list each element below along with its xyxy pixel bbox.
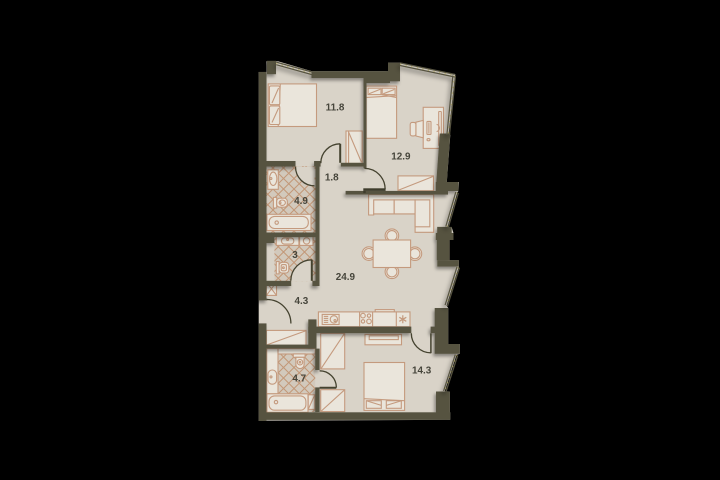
svg-text:12.9: 12.9 xyxy=(391,151,411,162)
svg-text:1.8: 1.8 xyxy=(325,172,339,183)
svg-text:4.9: 4.9 xyxy=(294,196,308,207)
svg-text:14.3: 14.3 xyxy=(412,365,432,376)
svg-text:3: 3 xyxy=(292,250,298,261)
svg-text:11.8: 11.8 xyxy=(326,102,345,113)
svg-text:4.3: 4.3 xyxy=(295,296,309,307)
svg-text:24.9: 24.9 xyxy=(336,272,356,283)
svg-text:4.7: 4.7 xyxy=(292,374,306,385)
